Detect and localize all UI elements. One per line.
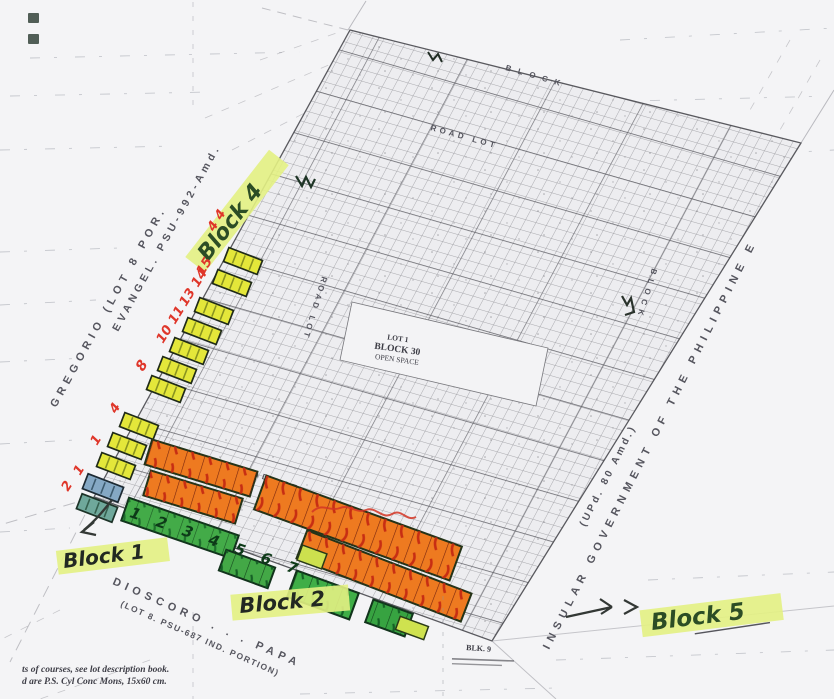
footnote-line2: d are P.S. Cyl Conc Mons, 15x60 cm. xyxy=(22,677,167,687)
plat-map-canvas: GREGORIO (LOT 8 POR. EVANGEL. PSU-992-Am… xyxy=(0,0,834,699)
blk9-label: BLK. 9 xyxy=(466,643,491,654)
footnote-line1: ts of courses, see lot description book. xyxy=(22,665,169,675)
scanned-subdivision-plan: GREGORIO (LOT 8 POR. EVANGEL. PSU-992-Am… xyxy=(0,0,834,699)
